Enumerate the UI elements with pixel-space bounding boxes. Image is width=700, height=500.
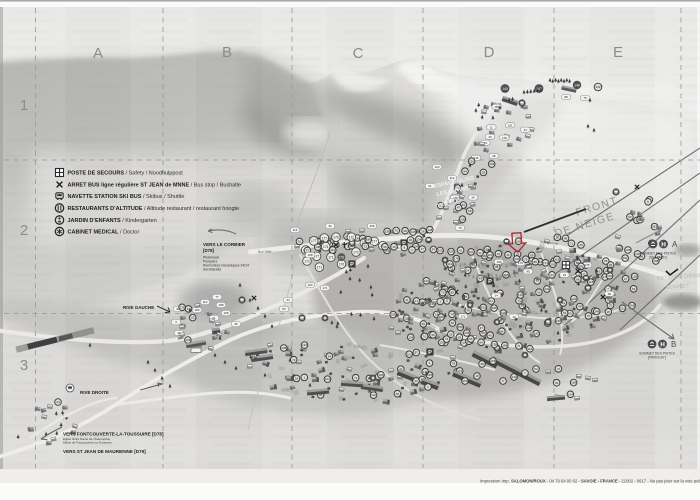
svg-text:87: 87 bbox=[432, 248, 436, 252]
svg-text:174: 174 bbox=[543, 261, 548, 265]
svg-text:RIVE DROITE: RIVE DROITE bbox=[80, 390, 109, 395]
svg-text:134: 134 bbox=[544, 287, 549, 291]
svg-text:36: 36 bbox=[537, 290, 541, 294]
svg-text:165: 165 bbox=[369, 224, 374, 228]
svg-text:16: 16 bbox=[392, 245, 396, 249]
svg-text:101: 101 bbox=[469, 250, 474, 254]
svg-text:170: 170 bbox=[339, 262, 345, 266]
svg-text:178: 178 bbox=[180, 305, 185, 309]
svg-text:191: 191 bbox=[620, 306, 625, 310]
svg-text:118: 118 bbox=[489, 162, 494, 166]
svg-text:48: 48 bbox=[492, 154, 496, 158]
svg-text:31: 31 bbox=[423, 335, 427, 339]
svg-text:198: 198 bbox=[307, 253, 312, 257]
svg-text:85: 85 bbox=[526, 270, 530, 274]
svg-text:191: 191 bbox=[550, 262, 555, 266]
svg-text:31: 31 bbox=[506, 253, 510, 257]
svg-text:38: 38 bbox=[480, 362, 484, 366]
svg-text:68: 68 bbox=[468, 209, 472, 213]
svg-text:H: H bbox=[660, 341, 665, 348]
svg-text:11: 11 bbox=[479, 251, 482, 255]
svg-text:RESTAURANTS D’ALTITUDE / Altit: RESTAURANTS D’ALTITUDE / Altitude restau… bbox=[68, 206, 240, 212]
svg-text:RIVE GAUCHE: RIVE GAUCHE bbox=[123, 305, 154, 310]
svg-text:134: 134 bbox=[302, 343, 307, 347]
svg-text:87: 87 bbox=[415, 351, 419, 355]
svg-text:68: 68 bbox=[530, 254, 534, 258]
svg-text:48: 48 bbox=[403, 229, 407, 233]
svg-text:CABINET MEDICAL / Doctor: CABINET MEDICAL / Doctor bbox=[68, 230, 140, 236]
svg-text:116: 116 bbox=[555, 258, 560, 262]
svg-text:128: 128 bbox=[632, 275, 637, 279]
svg-text:108: 108 bbox=[460, 217, 465, 221]
svg-text:61: 61 bbox=[490, 299, 494, 303]
svg-text:138: 138 bbox=[315, 245, 320, 249]
svg-text:69: 69 bbox=[608, 292, 612, 296]
svg-text:Rue Vaile: Rue Vaile bbox=[258, 250, 272, 254]
svg-text:126: 126 bbox=[487, 253, 492, 257]
svg-text:24: 24 bbox=[495, 294, 499, 298]
svg-text:101: 101 bbox=[508, 124, 513, 128]
svg-text:198: 198 bbox=[492, 306, 497, 310]
svg-text:92: 92 bbox=[409, 238, 413, 242]
svg-text:132: 132 bbox=[514, 257, 519, 261]
svg-text:JARDIN D’ENFANTS / Kindergarte: JARDIN D’ENFANTS / Kindergarten bbox=[68, 218, 157, 224]
svg-text:75: 75 bbox=[609, 303, 613, 307]
svg-text:198: 198 bbox=[223, 311, 228, 315]
svg-text:Eglise Notre Dame de l’Assompt: Eglise Notre Dame de l’AssomptionMairie … bbox=[63, 437, 112, 445]
svg-text:63: 63 bbox=[462, 203, 466, 207]
svg-text:172: 172 bbox=[304, 259, 310, 263]
svg-text:194: 194 bbox=[424, 279, 429, 283]
svg-text:45: 45 bbox=[579, 243, 583, 247]
svg-text:33: 33 bbox=[497, 252, 501, 256]
svg-text:142: 142 bbox=[511, 375, 516, 379]
svg-text:112: 112 bbox=[330, 248, 335, 252]
svg-text:138: 138 bbox=[281, 346, 286, 350]
svg-text:12: 12 bbox=[517, 299, 521, 303]
svg-text:Rue des Trolles: Rue des Trolles bbox=[345, 237, 368, 242]
svg-text:45: 45 bbox=[431, 333, 435, 337]
svg-text:146: 146 bbox=[574, 83, 580, 87]
svg-text:ARRET BUS ligne régulière ST J: ARRET BUS ligne régulière ST JEAN de MNN… bbox=[68, 183, 242, 189]
svg-text:191: 191 bbox=[623, 256, 628, 260]
svg-text:23: 23 bbox=[191, 316, 195, 320]
svg-text:17: 17 bbox=[421, 247, 425, 251]
svg-text:171: 171 bbox=[460, 315, 465, 319]
svg-text:26: 26 bbox=[607, 310, 611, 314]
svg-text:104: 104 bbox=[325, 377, 330, 381]
svg-text:49: 49 bbox=[479, 277, 483, 281]
svg-text:46: 46 bbox=[489, 333, 493, 337]
svg-text:155: 155 bbox=[391, 313, 396, 317]
svg-text:104: 104 bbox=[434, 165, 439, 169]
svg-text:63: 63 bbox=[568, 312, 572, 316]
svg-text:17: 17 bbox=[415, 299, 419, 303]
svg-text:24: 24 bbox=[56, 400, 60, 404]
svg-text:23: 23 bbox=[563, 273, 567, 277]
svg-text:VERS FONTCOUVERTE-LA-TOUSSUIRE: VERS FONTCOUVERTE-LA-TOUSSUIRE [D78] bbox=[63, 432, 164, 437]
svg-text:108: 108 bbox=[490, 359, 495, 363]
svg-text:95: 95 bbox=[604, 259, 608, 263]
svg-text:68: 68 bbox=[576, 277, 580, 281]
svg-text:88: 88 bbox=[534, 260, 538, 264]
svg-text:155: 155 bbox=[449, 250, 454, 254]
svg-text:76: 76 bbox=[587, 314, 591, 318]
svg-text:146: 146 bbox=[526, 326, 531, 330]
svg-text:56: 56 bbox=[396, 392, 400, 396]
svg-text:46: 46 bbox=[328, 224, 332, 228]
svg-text:47: 47 bbox=[480, 326, 484, 330]
svg-text:26: 26 bbox=[471, 196, 475, 200]
svg-text:76: 76 bbox=[395, 229, 399, 233]
svg-text:26: 26 bbox=[449, 332, 453, 336]
svg-text:108: 108 bbox=[625, 248, 630, 252]
svg-text:194: 194 bbox=[307, 283, 312, 287]
svg-text:47: 47 bbox=[624, 277, 628, 281]
svg-text:177: 177 bbox=[311, 239, 317, 243]
svg-text:165: 165 bbox=[516, 239, 521, 243]
svg-text:B: B bbox=[671, 340, 676, 349]
svg-text:54: 54 bbox=[328, 354, 332, 358]
svg-text:158: 158 bbox=[458, 325, 463, 329]
svg-text:[PAROLAY]: [PAROLAY] bbox=[648, 356, 665, 360]
svg-text:74: 74 bbox=[450, 312, 454, 316]
svg-text:128: 128 bbox=[427, 228, 432, 232]
svg-text:36: 36 bbox=[234, 322, 238, 326]
svg-text:83: 83 bbox=[282, 307, 286, 311]
svg-text:41: 41 bbox=[459, 248, 463, 252]
svg-text:118: 118 bbox=[589, 280, 594, 284]
svg-text:116: 116 bbox=[528, 347, 533, 351]
svg-text:18: 18 bbox=[295, 377, 299, 381]
svg-text:75: 75 bbox=[441, 291, 445, 295]
svg-text:155: 155 bbox=[464, 331, 469, 335]
svg-text:77: 77 bbox=[306, 249, 310, 253]
svg-text:112: 112 bbox=[448, 262, 453, 266]
svg-text:Impression Imp. SALOMON/ROUX -: Impression Imp. SALOMON/ROUX - 04 79 64 … bbox=[480, 479, 700, 484]
svg-text:75: 75 bbox=[583, 96, 587, 100]
svg-text:71: 71 bbox=[517, 344, 521, 348]
svg-text:138: 138 bbox=[492, 343, 497, 347]
svg-text:134: 134 bbox=[416, 237, 421, 241]
svg-text:146: 146 bbox=[410, 230, 415, 234]
svg-text:VERS ST JEAN DE MAURIENNE [D79: VERS ST JEAN DE MAURIENNE [D79] bbox=[63, 449, 146, 454]
svg-text:184: 184 bbox=[378, 373, 383, 377]
svg-text:178: 178 bbox=[454, 257, 459, 261]
svg-text:61: 61 bbox=[428, 184, 432, 188]
svg-text:46: 46 bbox=[555, 381, 559, 385]
svg-text:NAVETTE STATION SKI BUS / Skib: NAVETTE STATION SKI BUS / Skibus / Shutt… bbox=[68, 194, 185, 200]
svg-text:116: 116 bbox=[293, 228, 298, 232]
svg-text:54: 54 bbox=[563, 311, 567, 315]
svg-text:34: 34 bbox=[286, 298, 290, 302]
svg-text:178: 178 bbox=[584, 263, 589, 267]
svg-text:171: 171 bbox=[328, 255, 334, 259]
svg-text:56: 56 bbox=[451, 321, 455, 325]
svg-text:184: 184 bbox=[502, 344, 507, 348]
svg-text:140: 140 bbox=[502, 87, 508, 91]
svg-text:186: 186 bbox=[194, 308, 199, 312]
svg-text:33: 33 bbox=[488, 135, 492, 139]
svg-text:24: 24 bbox=[466, 268, 470, 272]
svg-text:134: 134 bbox=[568, 392, 573, 396]
svg-text:181: 181 bbox=[579, 264, 584, 268]
svg-text:47: 47 bbox=[457, 206, 461, 210]
svg-text:69: 69 bbox=[422, 322, 426, 326]
svg-text:172: 172 bbox=[353, 250, 359, 254]
svg-text:71: 71 bbox=[354, 376, 358, 380]
svg-text:74: 74 bbox=[445, 337, 449, 341]
svg-text:104: 104 bbox=[607, 274, 612, 278]
svg-text:52: 52 bbox=[534, 367, 538, 371]
svg-text:54: 54 bbox=[479, 340, 483, 344]
svg-text:196: 196 bbox=[185, 338, 190, 342]
svg-text:94: 94 bbox=[463, 169, 467, 173]
svg-text:18: 18 bbox=[475, 374, 479, 378]
svg-text:126: 126 bbox=[502, 136, 507, 140]
svg-text:168: 168 bbox=[653, 259, 658, 263]
svg-text:102: 102 bbox=[481, 306, 486, 310]
svg-text:85: 85 bbox=[451, 291, 455, 295]
svg-text:26: 26 bbox=[421, 229, 425, 233]
svg-text:188: 188 bbox=[218, 303, 223, 307]
svg-text:171: 171 bbox=[317, 265, 323, 269]
svg-text:A: A bbox=[672, 240, 678, 249]
svg-text:H: H bbox=[661, 241, 666, 248]
svg-text:76: 76 bbox=[458, 226, 462, 230]
svg-text:158: 158 bbox=[462, 379, 467, 383]
svg-text:132: 132 bbox=[595, 85, 600, 89]
svg-text:196: 196 bbox=[496, 260, 501, 264]
svg-text:136: 136 bbox=[385, 230, 390, 234]
svg-text:102: 102 bbox=[407, 352, 412, 356]
svg-text:75: 75 bbox=[524, 257, 528, 261]
svg-text:12: 12 bbox=[512, 315, 516, 319]
svg-text:41: 41 bbox=[405, 298, 409, 302]
svg-text:175: 175 bbox=[333, 235, 339, 239]
svg-text:(BELLARD): (BELLARD) bbox=[649, 256, 667, 260]
svg-text:49: 49 bbox=[467, 308, 471, 312]
svg-text:38: 38 bbox=[482, 171, 486, 175]
svg-text:POSTE DE SECOURS / Safety / No: POSTE DE SECOURS / Safety / Noodhulppost bbox=[68, 171, 184, 177]
svg-text:56: 56 bbox=[469, 337, 473, 341]
svg-text:124: 124 bbox=[571, 297, 576, 301]
svg-text:34: 34 bbox=[550, 273, 554, 277]
svg-text:102: 102 bbox=[438, 249, 443, 253]
svg-text:28: 28 bbox=[458, 335, 462, 339]
svg-text:VERS LE CORBIER: VERS LE CORBIER bbox=[203, 242, 246, 247]
svg-text:177: 177 bbox=[372, 240, 378, 244]
svg-text:61: 61 bbox=[298, 240, 302, 244]
svg-text:95: 95 bbox=[383, 245, 387, 249]
svg-text:83: 83 bbox=[609, 263, 613, 267]
svg-text:174: 174 bbox=[323, 245, 329, 249]
svg-text:112: 112 bbox=[203, 300, 208, 304]
svg-text:146: 146 bbox=[594, 310, 599, 314]
svg-text:176: 176 bbox=[339, 255, 345, 259]
svg-text:165: 165 bbox=[571, 381, 576, 385]
svg-text:72: 72 bbox=[364, 244, 368, 248]
svg-text:31: 31 bbox=[524, 128, 528, 132]
svg-text:71: 71 bbox=[570, 241, 574, 245]
svg-text:77: 77 bbox=[215, 295, 219, 299]
svg-text:171: 171 bbox=[322, 286, 327, 290]
svg-text:124: 124 bbox=[408, 335, 413, 339]
svg-text:11: 11 bbox=[490, 126, 493, 130]
svg-text:63: 63 bbox=[632, 287, 636, 291]
svg-text:116: 116 bbox=[371, 393, 376, 397]
svg-text:52: 52 bbox=[628, 215, 632, 219]
svg-text:88: 88 bbox=[564, 95, 568, 99]
svg-text:72: 72 bbox=[557, 367, 561, 371]
svg-text:191: 191 bbox=[469, 159, 474, 163]
svg-text:[D78]: [D78] bbox=[203, 248, 215, 253]
svg-text:177: 177 bbox=[322, 236, 328, 240]
svg-text:168: 168 bbox=[629, 304, 634, 308]
svg-text:48: 48 bbox=[578, 305, 582, 309]
svg-text:92: 92 bbox=[414, 379, 418, 383]
svg-text:72: 72 bbox=[292, 358, 296, 362]
svg-text:33: 33 bbox=[452, 362, 456, 366]
